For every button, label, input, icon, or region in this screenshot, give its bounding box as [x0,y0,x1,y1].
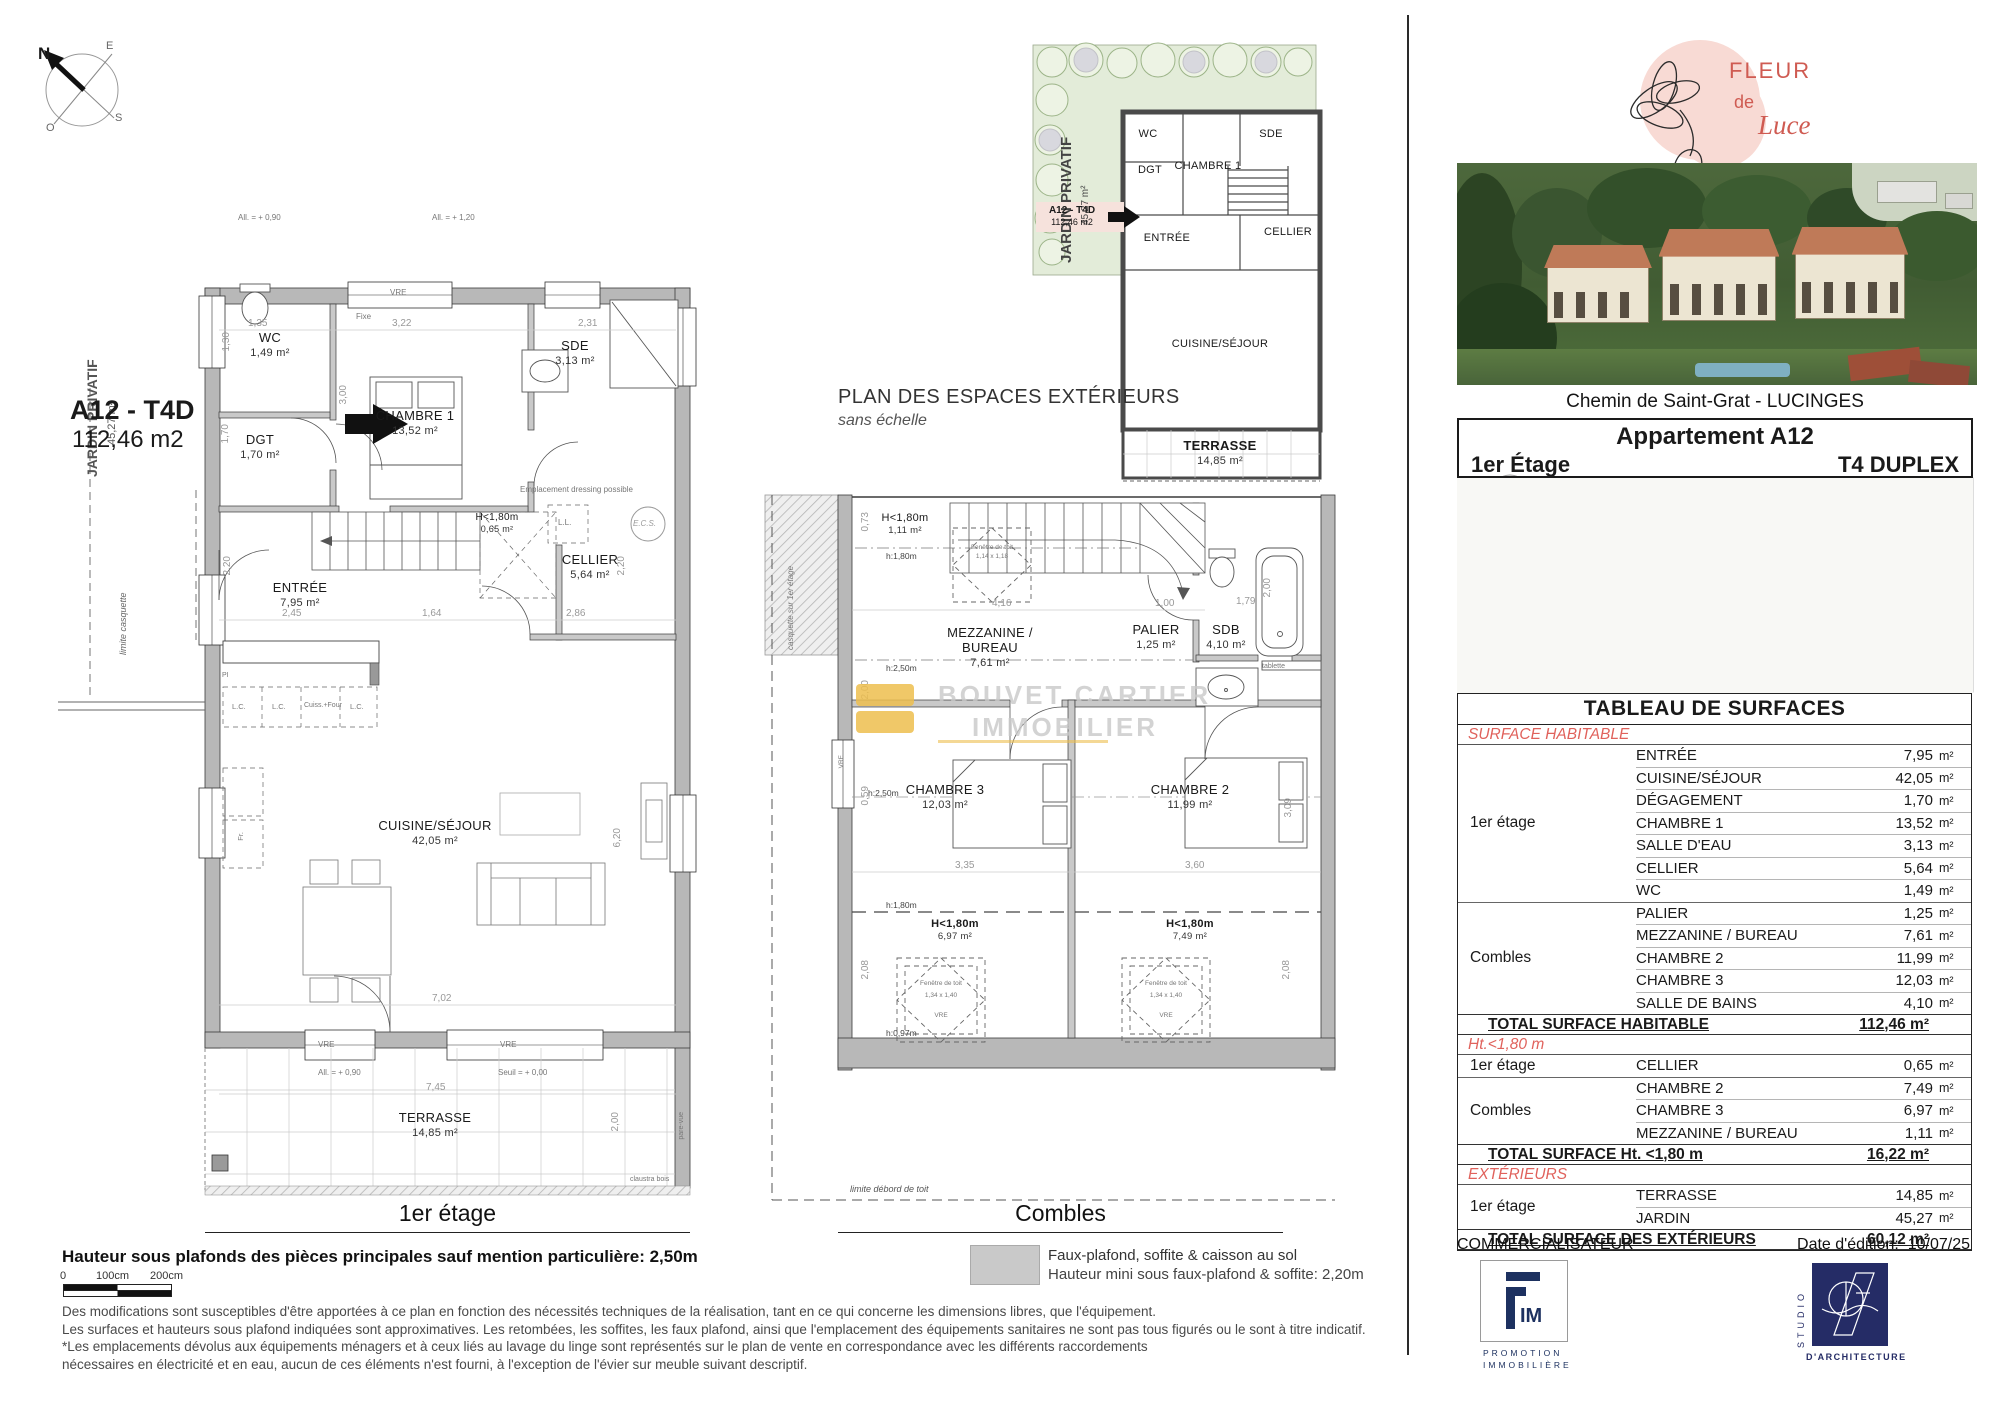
dim: 3,09 [1283,798,1294,817]
table-room-cell: MEZZANINE / BUREAU [1636,1125,1871,1142]
annotation-seuil: Seuil = + 0,00 [498,1068,547,1077]
fen-toit-dim: 1,14 x 1,18 [962,553,1022,560]
fen-toit-vre: VRE [1131,1012,1201,1019]
table-section-header: Ht.<1,80 m [1458,1035,1971,1055]
room-label-palier: PALIER1,25 m² [1125,622,1187,653]
caption-underline [838,1232,1283,1233]
dim: 7,02 [432,993,451,1004]
dim: 3,00 [338,385,349,404]
table-value-cell: 3,13 [1871,837,1933,854]
dim: 2,00 [1262,578,1273,597]
ext-tag-id: A12 - T4D [1036,205,1108,216]
table-value-cell: 1,70 [1871,792,1933,809]
table-unit-cell: m² [1933,974,1971,988]
compass-o: O [46,122,55,134]
room-label-souspente: H<1,80m0,65 m² [462,512,532,535]
table-unit-cell: m² [1933,906,1971,920]
table-value-cell: 7,49 [1871,1080,1933,1097]
annotation-lc: L.C. [232,702,246,711]
annotation-allege: All. = + 0,90 [238,213,281,222]
ext-room-cuisine: CUISINE/SÉJOUR [1160,338,1280,350]
compass-icon [44,50,118,126]
table-unit-cell: m² [1933,839,1971,853]
table-unit-cell: m² [1933,816,1971,830]
table-row: CELLIER0,65m² [1636,1055,1971,1077]
table-unit-cell: m² [1933,1189,1971,1203]
dim: 2,86 [566,608,585,619]
annotation-fr: Fr. [236,832,245,841]
dim: 1,64 [422,608,441,619]
table-row: DÉGAGEMENT1,70m² [1636,790,1971,813]
photo-chalet [1547,265,1649,323]
legend-line1: Faux-plafond, soffite & caisson au sol [1048,1247,1297,1264]
fen-toit-dim: 1,34 x 1,40 [906,992,976,999]
dim: 3,35 [955,860,974,871]
table-unit-cell: m² [1933,861,1971,875]
caption-underline [205,1232,690,1233]
annotation-cuiss: Cuiss.+Four [304,702,342,709]
footer-row: COMMERCIALISATEUR Date d'édition: 10/07/… [1457,1236,1970,1254]
studio-bottom-label: D'ARCHITECTURE [1806,1352,1907,1362]
combles-sp-top: H<1,80m1,11 m² [868,512,942,537]
dim: 2,00 [610,1112,621,1131]
legend-line2: Hauteur mini sous faux-plafond & soffite… [1048,1266,1364,1283]
ext-jardin-label: JARDIN PRIVATIF [1058,88,1075,263]
table-value-cell: 0,65 [1871,1057,1933,1074]
table-row: MEZZANINE / BUREAU7,61m² [1636,925,1971,948]
table-group: ComblesCHAMBRE 27,49m²CHAMBRE 36,97m²MEZ… [1458,1077,1971,1145]
table-group: 1er étageENTRÉE7,95m²CUISINE/SÉJOUR42,05… [1458,745,1971,902]
table-unit-cell: m² [1933,951,1971,965]
room-label-sdb: SDB4,10 m² [1198,622,1254,653]
ext-room-wc: WC [1128,128,1168,140]
table-row: ENTRÉE7,95m² [1636,745,1971,768]
table-unit-cell: m² [1933,1104,1971,1118]
table-room-cell: CHAMBRE 3 [1636,1102,1871,1119]
room-label-terrasse: TERRASSE14,85 m² [375,1110,495,1141]
dim: 0,73 [860,512,871,531]
table-room-cell: SALLE DE BAINS [1636,995,1871,1012]
plan-sheet: N E S O JARDIN PRIVATIF 45,27 m² A12 - T… [0,0,2000,1413]
disclaimer-paragraph: Des modifications sont susceptibles d'êt… [62,1303,1366,1373]
brand-line3: Luce [1758,110,1810,141]
fen-toit-label: Fenêtre de toit [1131,980,1201,987]
table-unit-cell: m² [1933,794,1971,808]
fen-toit-label: Fenêtre de toit [962,544,1022,551]
compass-n: N [38,44,50,64]
table-value-cell: 7,61 [1871,927,1933,944]
table-value-cell: 1,11 [1871,1125,1933,1142]
photo-pool [1695,363,1790,377]
table-unit-cell: m² [1933,1081,1971,1095]
table-room-cell: CELLIER [1636,1057,1871,1074]
unit-tag-id: A12 - T4D [70,395,195,426]
table-room-cell: CUISINE/SÉJOUR [1636,770,1871,787]
date-label: Date d'édition: [1797,1236,1899,1253]
table-row: SALLE DE BAINS4,10m² [1636,993,1971,1015]
table-unit-cell: m² [1933,1211,1971,1225]
plan-ext-title: PLAN DES ESPACES EXTÉRIEURS [838,386,1180,409]
h180-label: h:1,80m [886,900,917,910]
combles-sp-ch2: H<1,80m7,49 m² [1145,918,1235,943]
table-room-cell: SALLE D'EAU [1636,837,1871,854]
watermark-line2: IMMOBILIER [972,712,1158,743]
annotation-vre: VRE [500,1040,516,1049]
fim-line2: IMMOBILIÈRE [1483,1360,1572,1370]
table-row: CHAMBRE 211,99m² [1636,948,1971,971]
table-total-row: TOTAL SURFACE HABITABLE112,46 m² [1458,1014,1971,1035]
annotation-allege: All. = + 1,20 [432,213,475,222]
scale-200: 200cm [150,1270,183,1282]
annotation-pi: PI [222,672,229,679]
table-group: 1er étageTERRASSE14,85m²JARDIN45,27m² [1458,1185,1971,1229]
table-value-cell: 7,95 [1871,747,1933,764]
table-group-name: Combles [1458,903,1636,1015]
room-label-mezzanine: MEZZANINE / BUREAU7,61 m² [920,625,1060,671]
unit-tag-area: 112,46 m2 [72,426,184,454]
table-value-cell: 45,27 [1871,1210,1933,1227]
table-section-header: EXTÉRIEURS [1458,1165,1971,1185]
table-room-cell: CHAMBRE 2 [1636,1080,1871,1097]
vre-left: VRE [838,755,845,768]
dim: 4,16 [992,598,1011,609]
unit-title: Appartement A12 [1459,423,1971,451]
brand-line2: de [1734,92,1754,113]
room-label-entree: ENTRÉE7,95 m² [255,580,345,611]
combles-sp-ch3: H<1,80m6,97 m² [910,918,1000,943]
compass-s: S [115,112,122,124]
table-room-cell: DÉGAGEMENT [1636,792,1871,809]
table-value-cell: 14,85 [1871,1187,1933,1204]
table-row: TERRASSE14,85m² [1636,1185,1971,1208]
table-group-name: 1er étage [1458,1055,1636,1077]
disclaimer-line: Des modifications sont susceptibles d'êt… [62,1303,1366,1321]
photo-chalet [1662,253,1776,321]
table-value-cell: 1,25 [1871,905,1933,922]
project-photo [1457,163,1977,385]
table-value-cell: 13,52 [1871,815,1933,832]
table-row: WC1,49m² [1636,880,1971,902]
table-value-cell: 11,99 [1871,950,1933,967]
room-label-chambre3: CHAMBRE 312,03 m² [890,782,1000,813]
tablette-label: tablette [1262,663,1285,670]
ext-room-cellier: CELLIER [1255,226,1321,238]
dim: 2,20 [616,556,627,575]
annotation-ecs: E.C.S. [633,519,656,528]
annotation-allege: All. = + 0,90 [318,1068,361,1077]
room-label-wc: WC1,49 m² [230,330,310,361]
dim: 0,59 [860,786,871,805]
table-unit-cell: m² [1933,771,1971,785]
table-row: CELLIER5,64m² [1636,858,1971,881]
scale-bar-bottom [63,1290,172,1297]
table-room-cell: ENTRÉE [1636,747,1871,764]
fim-line1: PROMOTION [1483,1348,1562,1358]
disclaimer-line: *Les emplacements dévolus aux équipement… [62,1338,1366,1356]
dim: 2,20 [222,556,233,575]
table-total-row: TOTAL SURFACE Ht. <1,80 m16,22 m² [1458,1144,1971,1165]
ext-room-sde: SDE [1246,128,1296,140]
table-row: CHAMBRE 36,97m² [1636,1100,1971,1123]
table-room-cell: CHAMBRE 3 [1636,972,1871,989]
table-room-cell: CHAMBRE 1 [1636,815,1871,832]
table-row: CHAMBRE 312,03m² [1636,970,1971,993]
ext-tag-area: 112,46 m2 [1036,217,1108,227]
table-group-name: 1er étage [1458,1185,1636,1229]
table-value-cell: 4,10 [1871,995,1933,1012]
date-value: 10/07/25 [1908,1236,1970,1253]
fen-toit-vre: VRE [906,1012,976,1019]
watermark-logo-icon [856,684,914,706]
table-room-cell: TERRASSE [1636,1187,1871,1204]
caption-floor1: 1er étage [205,1200,690,1227]
scale-100: 100cm [96,1270,129,1282]
table-room-cell: CELLIER [1636,860,1871,877]
table-row: CUISINE/SÉJOUR42,05m² [1636,768,1971,791]
table-value-cell: 5,64 [1871,860,1933,877]
annotation-vre: VRE [318,1040,334,1049]
table-value-cell: 12,03 [1871,972,1933,989]
svg-text:IM: IM [1520,1305,1542,1327]
brand-line1: FLEUR [1729,58,1811,84]
note-heights: Hauteur sous plafonds des pièces princip… [62,1247,698,1267]
casquette-label: casquette sur 1er étage [786,505,795,650]
table-value-cell: 1,49 [1871,882,1933,899]
dim: 1,00 [1155,598,1174,609]
photo-house-top [1877,181,1937,203]
annotation-lc: L.C. [350,702,364,711]
annotation-parevue: pare-vue [678,1112,685,1140]
table-room-cell: PALIER [1636,905,1871,922]
dim: 2,31 [578,318,597,329]
table-row: CHAMBRE 27,49m² [1636,1078,1971,1101]
table-room-cell: JARDIN [1636,1210,1871,1227]
disclaimer-line: nécessaires en électricité et en eau, au… [62,1356,1366,1374]
commercialisateur-label: COMMERCIALISATEUR [1457,1236,1634,1254]
scale-0: 0 [60,1270,66,1282]
table-room-cell: CHAMBRE 2 [1636,950,1871,967]
table-room-cell: MEZZANINE / BUREAU [1636,927,1871,944]
annotation-vre: VRE [390,288,406,297]
legend-swatch [970,1245,1040,1285]
table-unit-cell: m² [1933,996,1971,1010]
limite-toit-label: limite débord de toit [850,1184,929,1194]
photo-house-top [1945,193,1973,209]
fim-logo: IM [1480,1260,1568,1347]
table-group-name: Combles [1458,1078,1636,1145]
table-unit-cell: m² [1933,749,1971,763]
dim: 2,08 [860,960,871,979]
table-row: CHAMBRE 113,52m² [1636,813,1971,836]
project-address: Chemin de Saint-Grat - LUCINGES [1457,391,1973,413]
limite-casquette-label: limite casquette [118,565,128,655]
table-section-header: SURFACE HABITABLE [1458,725,1971,745]
annotation-ll: L.L. [558,518,571,527]
studio-logo [1812,1263,1888,1351]
annotation-lc: L.C. [272,702,286,711]
annotation-dressing: Emplacement dressing possible [520,485,633,494]
siteplan [1457,478,1973,693]
room-label-sde: SDE3,13 m² [540,338,610,369]
annotation-claustra: claustra bois [630,1176,669,1183]
h180-label: h:1,80m [886,551,917,561]
dim: 1,79 [1236,596,1255,607]
h097-label: h:0,97m [886,1028,917,1038]
table-row: JARDIN45,27m² [1636,1208,1971,1230]
table-value-cell: 42,05 [1871,770,1933,787]
watermark-line1: BOUVET CARTIER [938,680,1211,711]
table-value-cell: 6,97 [1871,1102,1933,1119]
ext-room-terrasse: TERRASSE14,85 m² [1160,438,1280,469]
table-unit-cell: m² [1933,1059,1971,1073]
dim: 6,20 [612,828,623,847]
plan-ext-subtitle: sans échelle [838,412,927,430]
unit-type: T4 DUPLEX [1838,452,1959,478]
room-label-chambre1: CHAMBRE 113,52 m² [355,408,475,439]
dim: 2,08 [1281,960,1292,979]
room-label-chambre2: CHAMBRE 211,99 m² [1135,782,1245,813]
dim: 1,30 [221,332,232,351]
unit-floor: 1er Étage [1471,452,1570,478]
photo-chalet [1795,251,1905,319]
ext-room-chambre1: CHAMBRE 1 [1158,160,1258,172]
dim: 1,35 [248,318,267,329]
surface-table: TABLEAU DE SURFACESSURFACE HABITABLE1er … [1457,693,1972,1251]
table-row: SALLE D'EAU3,13m² [1636,835,1971,858]
watermark-logo-icon [856,711,914,733]
table-unit-cell: m² [1933,929,1971,943]
dim: 1,70 [220,424,231,443]
fen-toit-label: Fenêtre de toit [906,980,976,987]
dim: 2,45 [282,608,301,619]
table-group: ComblesPALIER1,25m²MEZZANINE / BUREAU7,6… [1458,902,1971,1015]
dim: 3,60 [1185,860,1204,871]
studio-vertical-label: STUDIO [1796,1268,1806,1348]
dim: 7,45 [426,1082,445,1093]
table-group: 1er étageCELLIER0,65m² [1458,1055,1971,1077]
disclaimer-line: Les surfaces et hauteurs sous plafond in… [62,1321,1366,1339]
room-label-cuisine: CUISINE/SÉJOUR42,05 m² [370,818,500,849]
ext-room-entree: ENTRÉE [1132,232,1202,244]
caption-combles: Combles [838,1200,1283,1227]
compass-e: E [106,40,113,52]
table-title: TABLEAU DE SURFACES [1458,694,1971,725]
casquette-area [765,495,838,655]
table-unit-cell: m² [1933,884,1971,898]
watermark-underline [938,740,1108,743]
table-unit-cell: m² [1933,1126,1971,1140]
table-row: MEZZANINE / BUREAU1,11m² [1636,1123,1971,1145]
table-room-cell: WC [1636,882,1871,899]
annotation-fixe: Fixe [356,312,371,321]
fen-toit-dim: 1,34 x 1,40 [1131,992,1201,999]
table-row: PALIER1,25m² [1636,903,1971,926]
table-group-name: 1er étage [1458,745,1636,902]
dim: 3,22 [392,318,411,329]
h250-label: h:2,50m [886,663,917,673]
unit-info-box: Appartement A12 1er Étage T4 DUPLEX [1457,418,1973,478]
